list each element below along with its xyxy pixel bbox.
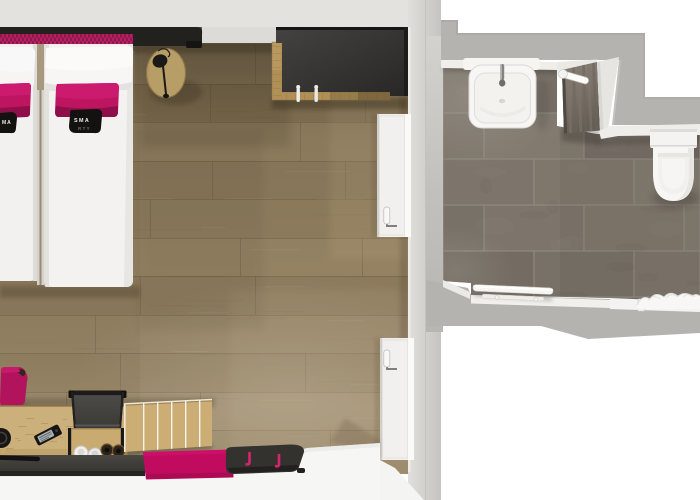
svg-text:MA: MA — [2, 120, 12, 126]
svg-text:RTY: RTY — [78, 126, 91, 131]
svg-text:SMA: SMA — [74, 118, 90, 124]
